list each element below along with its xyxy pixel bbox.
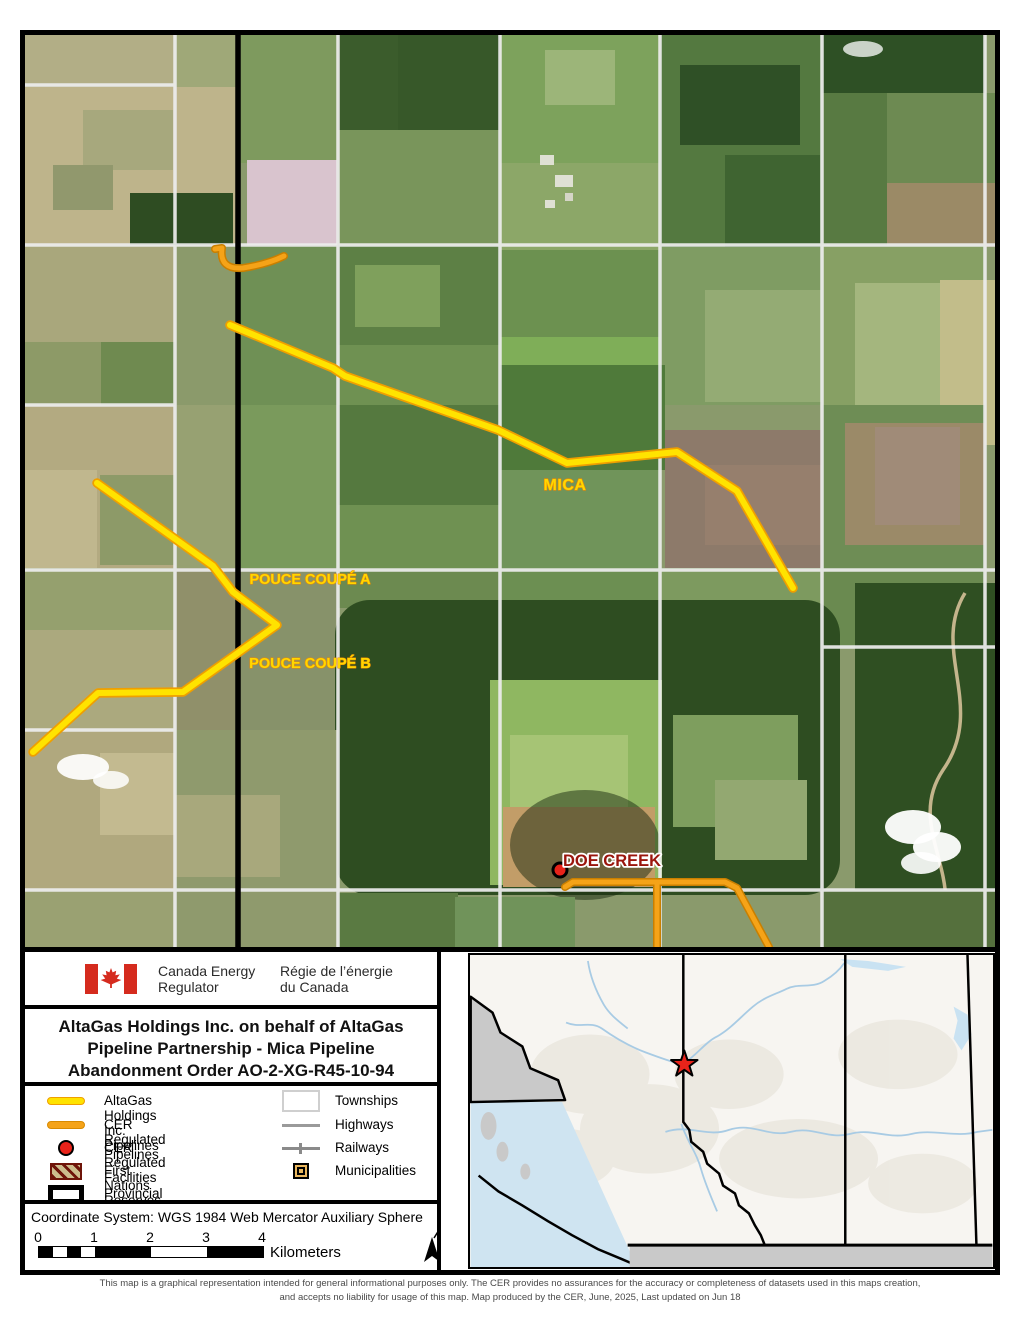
pouce-coupe-a-label: POUCE COUPÉ A	[249, 571, 371, 588]
disclaimer-text: This map is a graphical representation i…	[20, 1277, 1000, 1304]
agency-logo-box: Canada Energy Regulator Régie de l’énerg…	[25, 952, 437, 1009]
coordinate-system-text: Coordinate System: WGS 1984 Web Mercator…	[31, 1209, 423, 1225]
figure-frame: MICA POUCE COUPÉ A POUCE COUPÉ B DOE CRE…	[20, 30, 1000, 1275]
satellite-fields	[25, 35, 995, 947]
agency-name-en: Canada Energy Regulator	[158, 963, 255, 995]
coordinate-scale-box: Coordinate System: WGS 1984 Web Mercator…	[25, 1204, 437, 1270]
mica-label: MICA	[544, 477, 587, 494]
map-title-line1: AltaGas Holdings Inc. on behalf of AltaG…	[25, 1016, 437, 1038]
map-title-line3: Abandonment Order AO-2-XG-R45-10-94	[25, 1060, 437, 1082]
left-column: Canada Energy Regulator Régie de l’énerg…	[25, 952, 441, 1270]
legend-label: Railways	[335, 1140, 389, 1155]
scale-tick: 2	[140, 1229, 160, 1245]
main-map: MICA POUCE COUPÉ A POUCE COUPÉ B DOE CRE…	[25, 35, 995, 952]
legend-box: AltaGas Holdings Inc. Pipelines Township…	[25, 1086, 437, 1204]
townships-icon	[273, 1090, 329, 1112]
north-arrow-icon	[423, 1228, 443, 1266]
scale-ticks: 0 1 2 3 4	[25, 1229, 437, 1244]
municipalities-icon	[273, 1160, 329, 1182]
scale-tick: 1	[84, 1229, 104, 1245]
bottom-panel: Canada Energy Regulator Régie de l’énerg…	[25, 952, 995, 1270]
map-sheet: MICA POUCE COUPÉ A POUCE COUPÉ B DOE CRE…	[0, 0, 1020, 1320]
railways-icon	[273, 1137, 329, 1159]
scale-unit-label: Kilometers	[270, 1244, 341, 1261]
canada-flag-icon	[85, 964, 137, 994]
inset-overview-map	[468, 953, 995, 1269]
map-title-line2: Pipeline Partnership - Mica Pipeline	[25, 1038, 437, 1060]
orange-pipeline-icon	[38, 1114, 94, 1136]
doe-creek-label: DOE CREEK	[563, 852, 661, 870]
scale-tick: 3	[196, 1229, 216, 1245]
map-title-box: AltaGas Holdings Inc. on behalf of AltaG…	[25, 1009, 437, 1086]
scale-tick: 0	[28, 1229, 48, 1245]
legend-label: Municipalities	[335, 1163, 416, 1178]
first-nations-hatch-icon	[38, 1160, 94, 1182]
legend-label: Townships	[335, 1093, 398, 1108]
highways-icon	[273, 1114, 329, 1136]
legend-label: Highways	[335, 1117, 394, 1132]
disclaimer-line2: and accepts no liability for usage of th…	[20, 1291, 1000, 1305]
provincial-boundary-icon	[38, 1183, 94, 1205]
scale-tick: 4	[252, 1229, 272, 1245]
map-title: AltaGas Holdings Inc. on behalf of AltaG…	[25, 1009, 437, 1082]
agency-name-fr: Régie de l’énergie du Canada	[280, 963, 393, 995]
pouce-coupe-b-label: POUCE COUPÉ B	[249, 655, 371, 672]
scale-bar	[38, 1246, 264, 1258]
us-area	[630, 1245, 993, 1267]
yellow-pipeline-icon	[38, 1090, 94, 1112]
disclaimer-line1: This map is a graphical representation i…	[20, 1277, 1000, 1291]
facility-dot-icon	[38, 1137, 94, 1159]
